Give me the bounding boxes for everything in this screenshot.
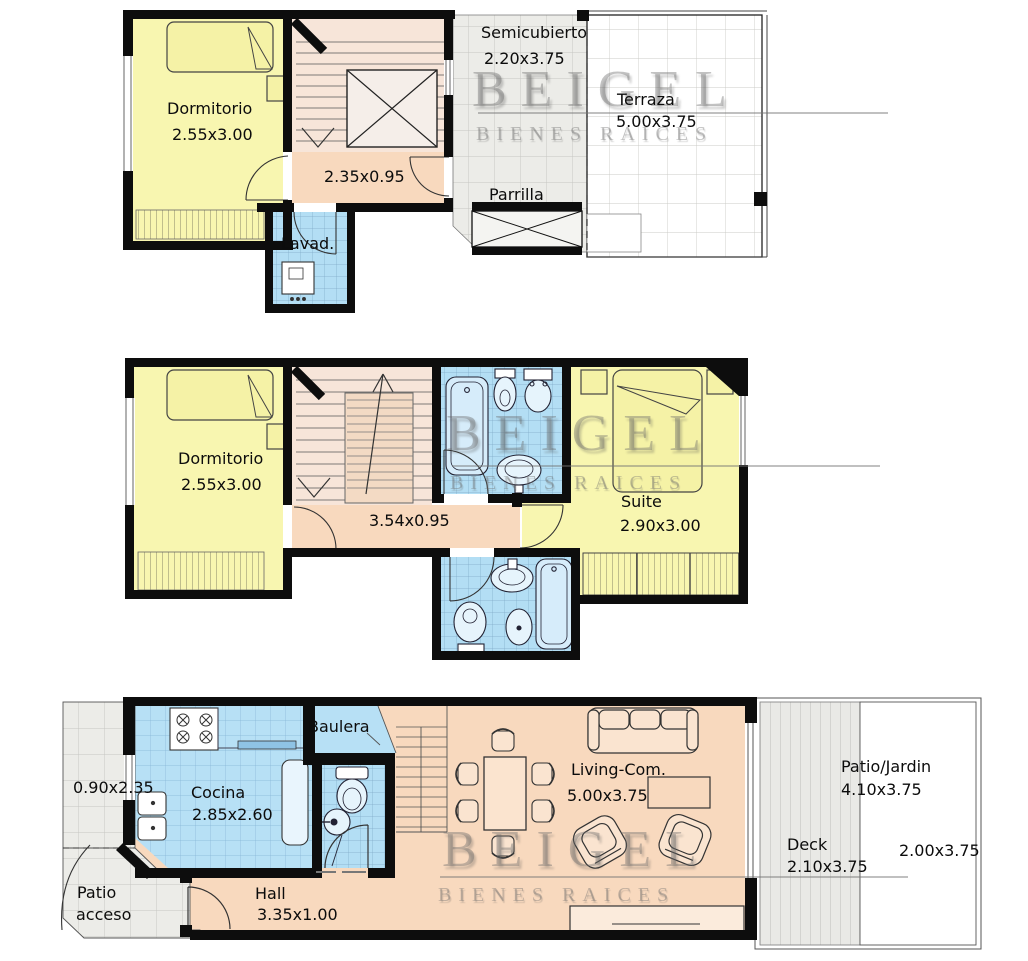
watermark-brand: BEIGEL	[442, 820, 711, 879]
floor-plan-sheet: BEIGEL BIENES RAICES BEIGEL BIENES RAICE…	[0, 0, 1028, 961]
kitchen-counter	[238, 741, 296, 749]
label-living-dim: 5.00x3.75	[567, 787, 648, 805]
label-terraza-dim: 5.00x3.75	[616, 113, 697, 131]
upper-dormitorio-wardrobe	[136, 210, 264, 239]
label-deck-dim: 2.10x3.75	[787, 858, 868, 876]
label-lavadero: Lavad.	[281, 235, 334, 253]
fridge	[282, 760, 308, 845]
deck-area	[760, 702, 860, 945]
label-patio-jardin-dim: 4.10x3.75	[841, 781, 922, 799]
suite-closet	[583, 553, 739, 595]
label-patio-acceso-1: Patio	[77, 884, 116, 902]
label-middle-dormitorio-dim: 2.55x3.00	[181, 476, 262, 494]
label-upper-hall-dim: 2.35x0.95	[324, 168, 405, 186]
label-patio-jardin-name: Patio/Jardin	[841, 758, 931, 776]
label-hall-dim: 3.35x1.00	[257, 906, 338, 924]
suite-entry	[522, 503, 571, 548]
sofa	[588, 708, 698, 753]
label-middle-dormitorio-name: Dormitorio	[178, 450, 263, 468]
label-cocina-dim: 2.85x2.60	[192, 806, 273, 824]
watermark-brand: BEIGEL	[446, 404, 715, 463]
label-suite-dim: 2.90x3.00	[620, 517, 701, 535]
label-patio-jardin-sub-dim: 2.00x3.75	[899, 842, 980, 860]
watermark-brand: BEIGEL	[472, 60, 741, 119]
upper-floor-plan	[122, 10, 767, 313]
label-deck-name: Deck	[787, 836, 827, 854]
label-patio-lateral-dim: 0.90x2.35	[73, 779, 154, 797]
terraza-notch	[587, 214, 641, 252]
label-semicubierto-name: Semicubierto	[481, 24, 587, 42]
label-patio-acceso-2: acceso	[76, 906, 131, 924]
watermark-divider	[452, 465, 880, 467]
label-middle-hall-dim: 3.54x0.95	[369, 512, 450, 530]
label-semicubierto-dim: 2.20x3.75	[484, 50, 565, 68]
label-baulera: Baulera	[308, 718, 370, 736]
patio-jardin-area	[860, 702, 976, 945]
label-parrilla: Parrilla	[489, 186, 544, 204]
middle-dormitorio-wardrobe	[138, 552, 264, 590]
label-cocina-name: Cocina	[191, 784, 245, 802]
watermark-tagline: BIENES RAICES	[438, 884, 675, 907]
label-upper-dormitorio-dim: 2.55x3.00	[172, 126, 253, 144]
label-upper-dormitorio-name: Dormitorio	[167, 100, 252, 118]
parrilla-grill	[472, 202, 582, 255]
label-suite-name: Suite	[621, 493, 662, 511]
sideboard	[570, 906, 744, 933]
label-terraza-name: Terraza	[617, 91, 675, 109]
label-hall-name: Hall	[255, 885, 286, 903]
label-living-name: Living-Com.	[571, 761, 666, 779]
